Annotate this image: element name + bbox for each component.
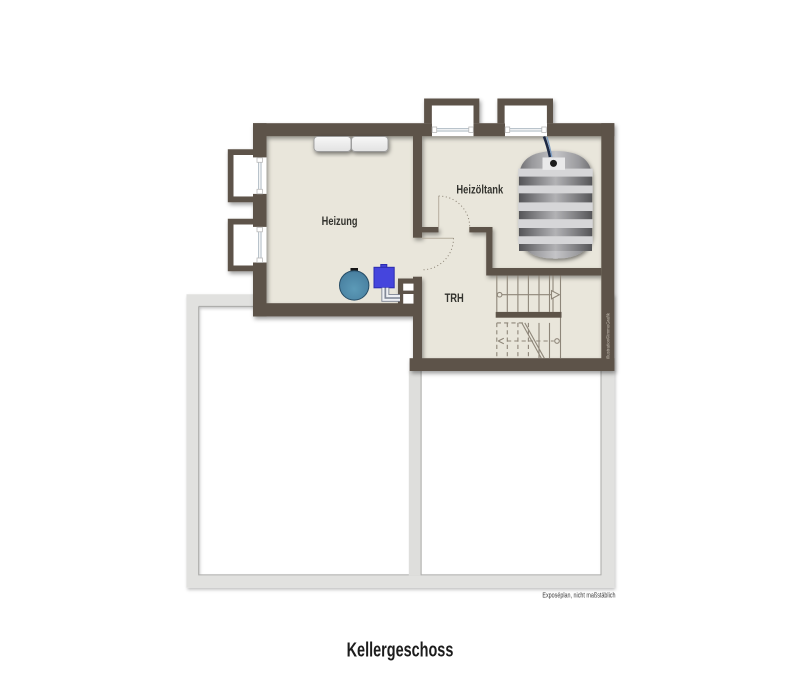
svg-text:Exposéplan, nicht maßstäblich: Exposéplan, nicht maßstäblich (542, 592, 615, 600)
svg-text:Illustration©ImmoGrafik: Illustration©ImmoGrafik (606, 312, 611, 359)
svg-text:Heizöltank: Heizöltank (456, 183, 503, 196)
svg-text:Heizung: Heizung (322, 215, 358, 228)
svg-text:TRH: TRH (445, 292, 464, 305)
svg-text:Kellergeschoss: Kellergeschoss (347, 638, 454, 661)
